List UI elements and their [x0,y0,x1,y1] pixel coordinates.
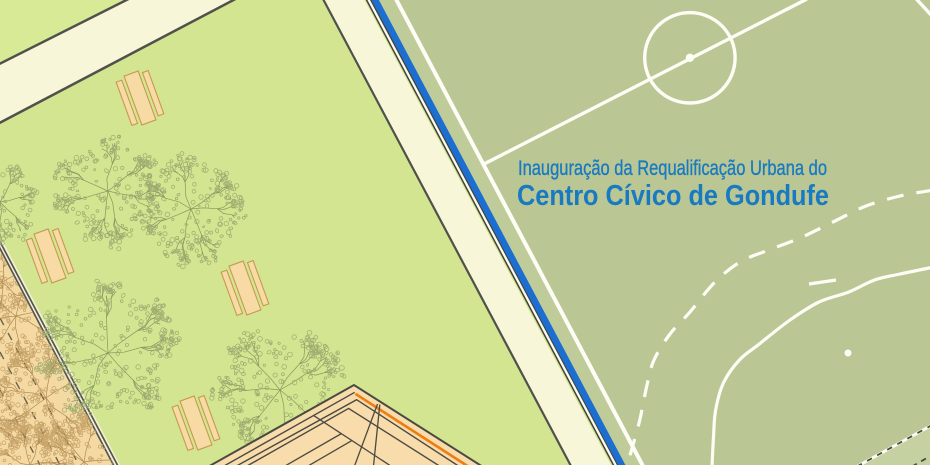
svg-text:Inauguração da Requalificação: Inauguração da Requalificação Urbana do [518,156,827,180]
svg-text:Centro Cívico de Gondufe: Centro Cívico de Gondufe [517,180,829,212]
